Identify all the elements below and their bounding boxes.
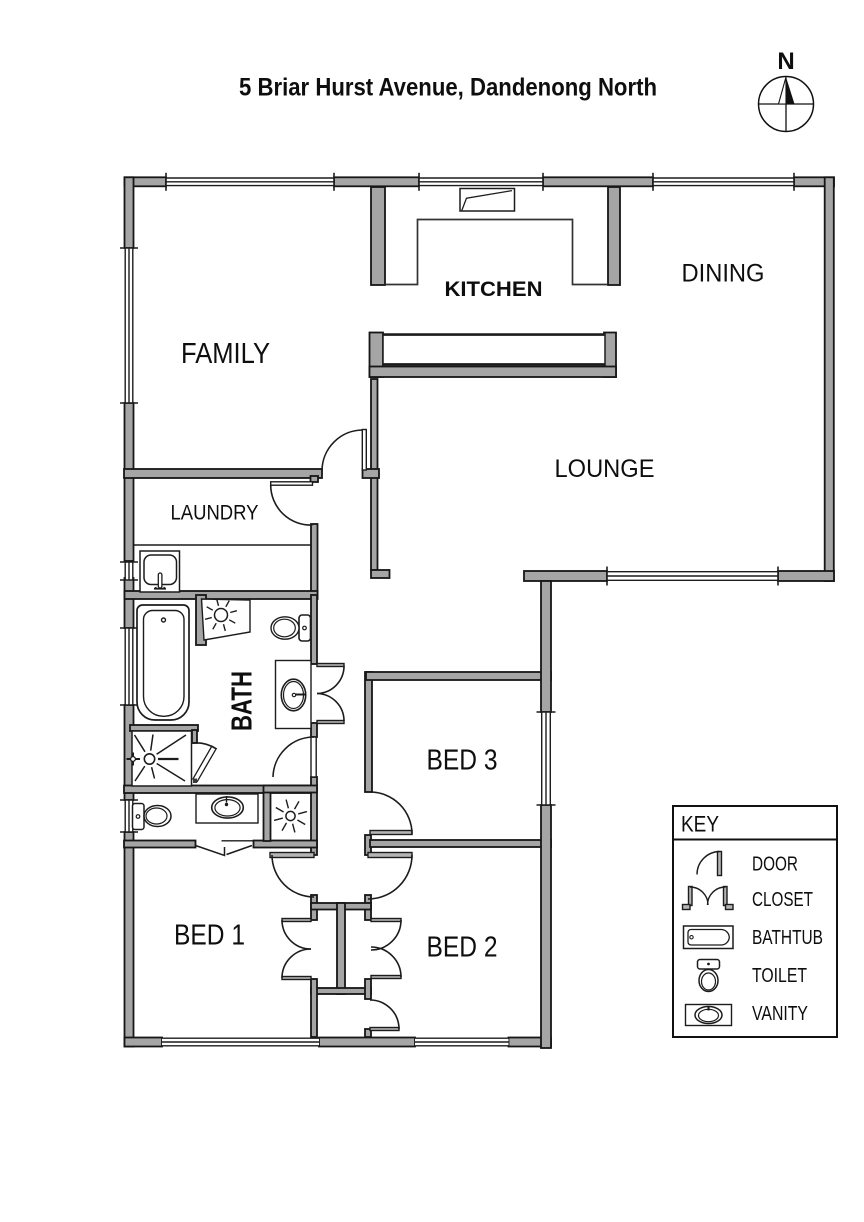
- svg-text:DOOR: DOOR: [752, 854, 798, 876]
- svg-text:TOILET: TOILET: [752, 965, 807, 987]
- svg-text:KEY: KEY: [681, 812, 719, 837]
- svg-text:KITCHEN: KITCHEN: [445, 278, 543, 301]
- svg-text:LOUNGE: LOUNGE: [555, 455, 655, 483]
- svg-text:CLOSET: CLOSET: [752, 889, 813, 911]
- svg-text:5 Briar Hurst Avenue, Dandenon: 5 Briar Hurst Avenue, Dandenong North: [239, 74, 657, 102]
- svg-text:N: N: [777, 48, 794, 75]
- svg-text:BATHTUB: BATHTUB: [752, 927, 823, 949]
- svg-text:BED 3: BED 3: [427, 745, 498, 777]
- svg-text:FAMILY: FAMILY: [181, 338, 270, 370]
- svg-text:BATH: BATH: [227, 671, 259, 731]
- svg-text:BED 2: BED 2: [427, 932, 498, 964]
- svg-text:LAUNDRY: LAUNDRY: [171, 502, 259, 525]
- svg-text:DINING: DINING: [682, 260, 765, 288]
- svg-text:VANITY: VANITY: [752, 1003, 808, 1025]
- svg-text:BED 1: BED 1: [174, 920, 245, 952]
